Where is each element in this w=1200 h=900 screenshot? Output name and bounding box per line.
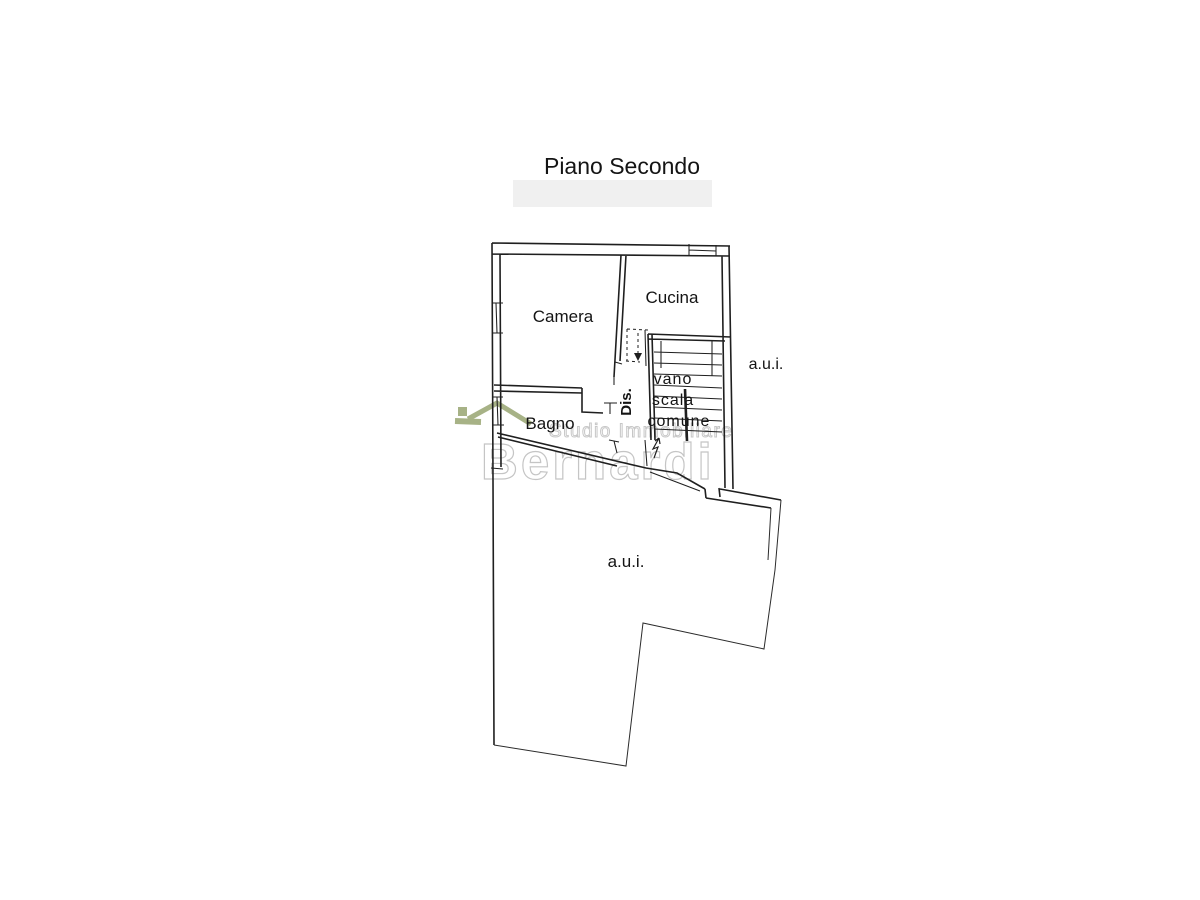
room-label-dis: Dis. [618,388,635,416]
flight-arrowhead [634,353,642,361]
room-label-cucina: Cucina [646,288,699,307]
aui-label-lower: a.u.i. [608,552,645,571]
stair-label-line3: comune [648,413,711,430]
floorplan-page: Studio Immobiliare Bernardi Piano Second… [0,0,1200,900]
aui-label-right: a.u.i. [749,356,784,373]
stair-label-line1: vano [654,371,693,388]
roof-dot [458,407,467,416]
floorplan-drawing: Studio Immobiliare Bernardi Piano Second… [0,0,1200,900]
lower-unit-outline [494,500,781,766]
page-title: Piano Secondo [544,153,700,179]
stair-label-line2: scala [652,392,694,409]
room-label-bagno: Bagno [525,414,574,433]
roof-eave [455,421,481,422]
scan-artifact-band [513,180,712,207]
room-label-camera: Camera [533,307,594,326]
